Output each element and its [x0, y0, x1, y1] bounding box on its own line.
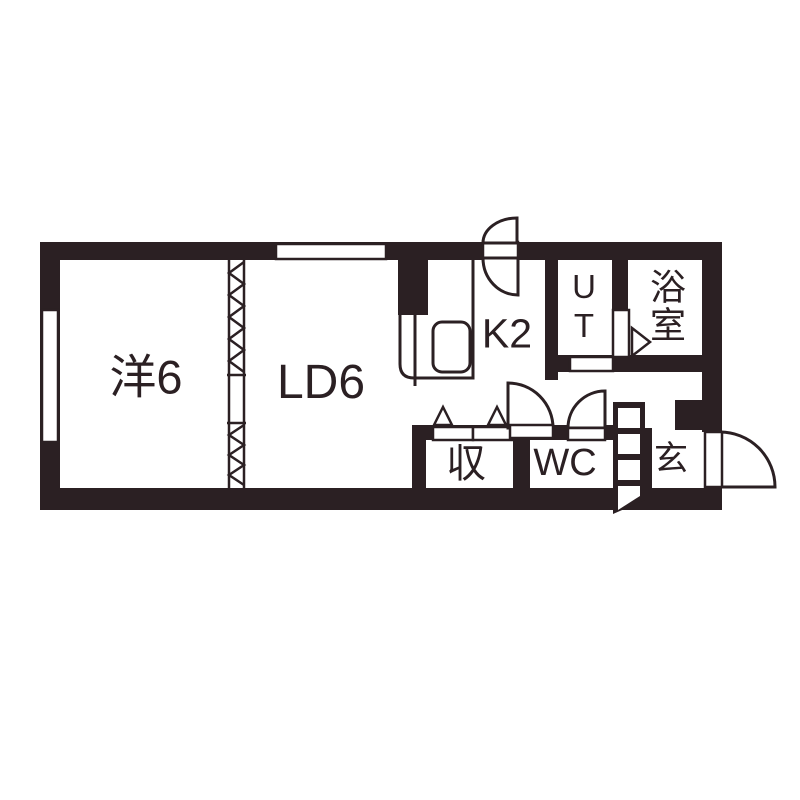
room-label-bathroom: 浴室	[647, 268, 683, 344]
utility-door-leaf	[570, 357, 613, 371]
stair-step	[618, 460, 640, 480]
room-label-utility: UT	[568, 268, 601, 346]
kitchen-sink-icon	[433, 322, 470, 372]
room-label-western-room: 洋6	[109, 354, 182, 401]
bathroom-door-leaf	[613, 310, 629, 357]
storage-bifold-icon	[488, 407, 506, 425]
kitchen-door-swing-inner-icon	[483, 258, 518, 295]
stair-step	[618, 434, 640, 454]
floor-plan: 洋6 LD6 K2 UT 浴室 収 WC 玄	[0, 0, 800, 800]
room-label-entrance: 玄	[654, 442, 688, 476]
wall-utility-bathroom	[612, 242, 628, 312]
hallway-door-leaf	[510, 425, 553, 438]
kitchen-door-swing-outer-icon	[483, 218, 517, 243]
entrance-door-swing-icon	[720, 432, 775, 487]
toilet-door-swing-icon	[568, 391, 605, 428]
window-north-icon	[276, 244, 386, 259]
wall-outer-right	[702, 242, 722, 432]
wall-kitchen-utility	[545, 242, 558, 380]
window-west-icon	[42, 310, 58, 442]
accordion-door-lower-icon	[229, 425, 244, 485]
entrance-door-leaf	[705, 432, 722, 487]
room-label-kitchen: K2	[482, 314, 532, 355]
toilet-door-leaf	[568, 428, 605, 440]
accordion-door-upper-icon	[229, 262, 244, 372]
wall-storage-left	[412, 440, 426, 488]
storage-bifold-icon	[434, 407, 452, 425]
room-label-storage: 収	[446, 444, 486, 484]
room-label-toilet: WC	[533, 444, 596, 482]
storage-door-leaf	[433, 427, 473, 440]
wall-storage-toilet	[513, 440, 530, 488]
stair-step	[618, 408, 640, 428]
wall-ld-kitchen-stub	[398, 242, 428, 315]
room-label-living-dining: LD6	[277, 359, 365, 407]
hallway-door-swing-icon	[508, 383, 553, 428]
wall-entrance-top	[675, 400, 703, 430]
